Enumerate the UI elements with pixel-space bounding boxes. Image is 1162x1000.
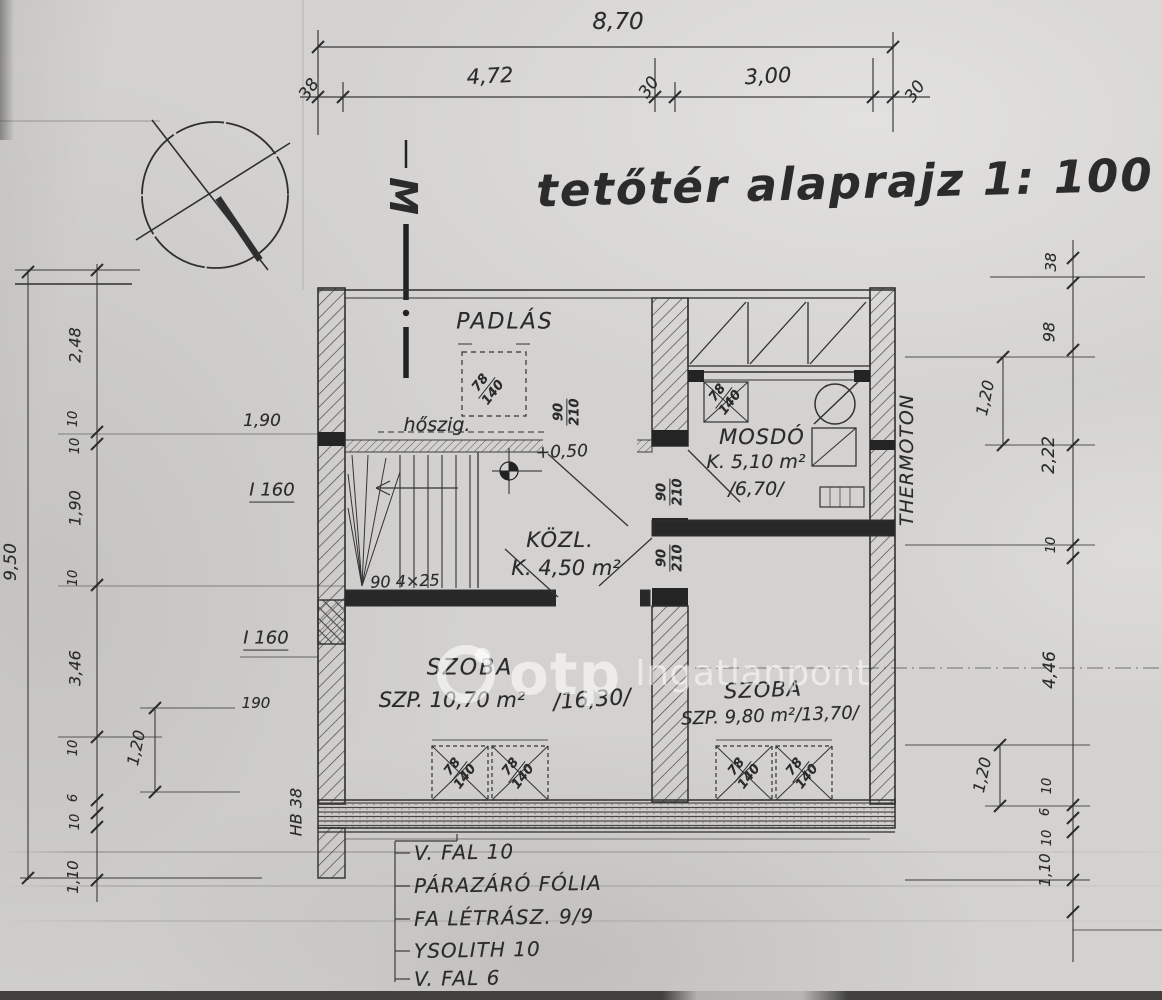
door-dim-width: 90: [655, 549, 669, 567]
dim-right: 4,46: [1042, 651, 1060, 689]
bathroom-fixtures: [812, 382, 864, 507]
door-dim-height: 210: [669, 478, 685, 505]
room-label-mosdo: MOSDÓ: [719, 426, 805, 448]
top-dimension-chain: [300, 30, 930, 135]
door-dim-width: 90: [655, 483, 669, 501]
dim-top-seg: 3,00: [744, 64, 792, 88]
dim-left: 2,48: [68, 327, 85, 363]
annotation-thermoton: THERMOTON: [898, 394, 918, 526]
room-area-alt-mosdo: /6,70/: [728, 480, 783, 500]
dim-right: 10: [1041, 830, 1055, 847]
annotation-hb38: HB 38: [289, 788, 306, 836]
room-area-mosdo: K. 5,10 m²: [706, 453, 805, 473]
stairs: [348, 452, 478, 588]
dim-left-total: 9,50: [3, 543, 21, 581]
legend-item: YSOLITH 10: [414, 937, 541, 963]
dim-top-seg: 4,72: [466, 64, 514, 88]
legend-item: FA LÉTRÁSZ. 9/9: [414, 904, 595, 931]
dim-left: 1,90: [68, 490, 85, 526]
legend-item: PÁRAZÁRÓ FÓLIA: [414, 871, 602, 898]
dim-right: 1,10: [1038, 853, 1054, 886]
floorplan-scan: tetőtér alaprajz 1: 100 M 8,70 38 4,72 3…: [0, 0, 1162, 1000]
otp-logo-icon: [437, 645, 495, 703]
legend-item: V. FAL 6: [414, 965, 501, 991]
dim-right: 2,22: [1041, 436, 1059, 474]
dim-right: 10: [1045, 537, 1059, 554]
dim-right: 6: [1039, 808, 1053, 816]
dim-left: 10: [69, 814, 83, 831]
windows: [432, 344, 832, 800]
annotation-level: +0,50: [536, 443, 589, 463]
annotation-stair-note: 90 4×25: [370, 572, 440, 591]
annotation-dim-190: 1,90: [243, 413, 281, 431]
plan-linework: [0, 0, 1162, 1000]
door-dim-mosdo: 90 210: [655, 478, 684, 505]
room-area-kozl: K. 4,50 m²: [511, 557, 620, 579]
door-dim-szoba-right: 90 210: [655, 544, 684, 571]
dim-right: 10: [1041, 778, 1055, 795]
otp-logo-dot-icon: [475, 648, 490, 663]
watermark-brand: otp: [509, 645, 621, 703]
dim-top-total: 8,70: [592, 10, 643, 34]
section-marker-label: M: [382, 177, 422, 215]
dim-left: 10: [67, 570, 81, 587]
annotation-beam-lower: I 160: [243, 630, 288, 651]
dim-left: 3,46: [68, 650, 85, 686]
legend-item: V. FAL 10: [414, 839, 514, 865]
dim-left: 10: [67, 411, 81, 428]
dim-right: 38: [1044, 252, 1060, 271]
dim-left: 6: [67, 794, 81, 802]
dim-left: 10: [69, 438, 83, 455]
otp-watermark: otp Ingatlanpont: [437, 645, 870, 703]
watermark-suffix: Ingatlanpont: [635, 656, 870, 692]
dim-left: 1,10: [66, 860, 82, 893]
door-dim-width: 90: [552, 403, 566, 421]
room-label-kozl: KÖZL.: [526, 529, 594, 551]
door-dim-kozl-top: 90 210: [552, 398, 581, 425]
north-compass-icon: [15, 120, 290, 284]
dim-left-inner-floor: 190: [242, 696, 271, 712]
annotation-beam-upper: I 160: [249, 482, 294, 503]
door-dim-height: 210: [669, 544, 685, 571]
room-label-padlas: PADLÁS: [456, 310, 553, 333]
section-line-m: [403, 140, 409, 378]
dim-left: 10: [67, 740, 81, 757]
radiator-icon: [820, 487, 864, 507]
right-dimension-chain: [905, 240, 1162, 962]
walls: [318, 288, 1162, 878]
level-marker-icon: [492, 448, 542, 494]
door-dim-height: 210: [566, 398, 582, 425]
dim-right: 98: [1042, 322, 1059, 342]
annotation-hoszig: hőszig.: [404, 416, 471, 436]
